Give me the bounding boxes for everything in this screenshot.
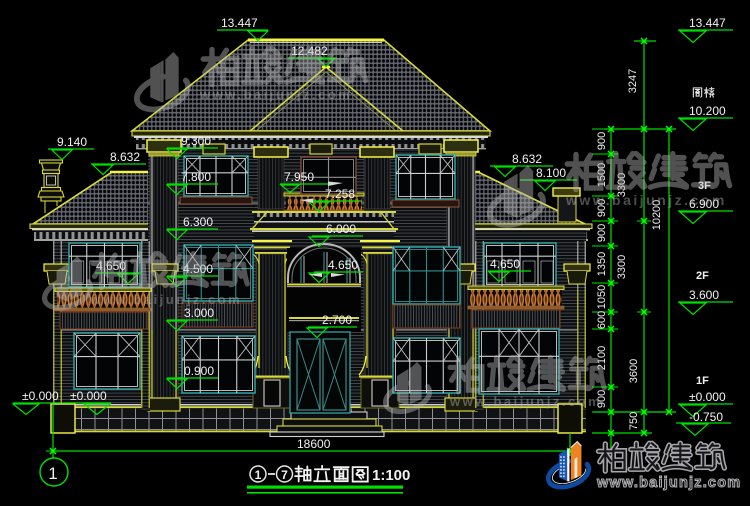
- svg-text:3.000: 3.000: [184, 306, 214, 320]
- svg-text:9.300: 9.300: [181, 134, 211, 148]
- svg-text:www.baijunjz.com: www.baijunjz.com: [199, 87, 352, 102]
- svg-text:1050: 1050: [596, 285, 608, 309]
- svg-text:0.900: 0.900: [184, 364, 214, 378]
- svg-text:7.800: 7.800: [181, 170, 211, 184]
- svg-text:www.baijunjz.com: www.baijunjz.com: [449, 394, 602, 409]
- svg-text:6.000: 6.000: [326, 222, 356, 236]
- svg-text:13.447: 13.447: [221, 16, 258, 30]
- svg-text:3600: 3600: [628, 359, 640, 383]
- svg-text:7.258: 7.258: [325, 187, 355, 201]
- svg-text:2.700: 2.700: [322, 313, 352, 327]
- svg-text:750: 750: [628, 412, 640, 430]
- svg-text:±0.000: ±0.000: [22, 389, 59, 403]
- svg-text:1F: 1F: [696, 375, 709, 387]
- svg-text:±0.000: ±0.000: [70, 389, 107, 403]
- svg-text:-0.750: -0.750: [689, 410, 723, 424]
- svg-text:3247: 3247: [627, 69, 639, 93]
- svg-text:1: 1: [48, 464, 57, 483]
- svg-text:8.632: 8.632: [512, 152, 542, 166]
- svg-text:1350: 1350: [596, 252, 608, 276]
- svg-text:18600: 18600: [297, 437, 331, 451]
- svg-text:6.300: 6.300: [183, 215, 213, 229]
- svg-text:2F: 2F: [696, 270, 709, 282]
- svg-text:900: 900: [596, 224, 608, 242]
- svg-text:600: 600: [596, 311, 608, 329]
- svg-text:4.650: 4.650: [328, 258, 358, 272]
- svg-text:www.baijunjz.com: www.baijunjz.com: [565, 192, 727, 208]
- svg-text:7.950: 7.950: [284, 170, 314, 184]
- svg-text:1:100: 1:100: [372, 467, 410, 484]
- svg-text:10.200: 10.200: [689, 104, 726, 118]
- svg-text:3300: 3300: [616, 255, 628, 279]
- svg-text:1: 1: [255, 468, 262, 482]
- svg-text:9.140: 9.140: [57, 135, 87, 149]
- svg-text:www.baijunjz.com: www.baijunjz.com: [596, 475, 741, 491]
- svg-text:www.baijunjz.com: www.baijunjz.com: [89, 292, 242, 307]
- svg-text:±0.000: ±0.000: [689, 390, 726, 404]
- svg-text:13.447: 13.447: [689, 16, 726, 30]
- svg-text:900: 900: [596, 132, 608, 150]
- svg-text:4.650: 4.650: [490, 257, 520, 271]
- svg-text:8.632: 8.632: [110, 150, 140, 164]
- svg-text:7: 7: [281, 468, 288, 482]
- svg-text:8.100: 8.100: [536, 166, 566, 180]
- svg-text:3.600: 3.600: [689, 288, 719, 302]
